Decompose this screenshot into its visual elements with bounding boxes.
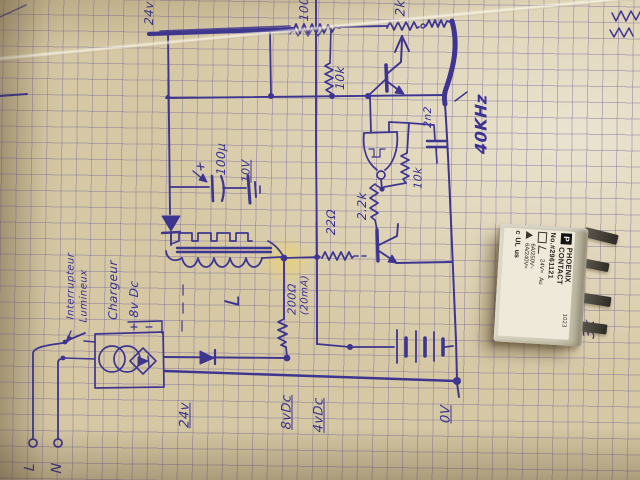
isolation-dashed-line bbox=[182, 285, 183, 331]
label-10k-feedback: 10k bbox=[412, 167, 425, 190]
schmitt-oscillator bbox=[364, 92, 467, 229]
base-lead bbox=[369, 79, 386, 95]
scribble bbox=[610, 28, 633, 37]
label-24v: 24v bbox=[178, 402, 193, 429]
label-cap-10v: 10V bbox=[240, 159, 253, 183]
resistor-10k-bus bbox=[325, 28, 333, 95]
charger-outline bbox=[95, 332, 164, 388]
gate-top bbox=[364, 132, 397, 133]
charger-output-wire bbox=[164, 350, 287, 364]
ground-bar bbox=[255, 182, 256, 197]
label-chargeur: Chargeur bbox=[106, 260, 120, 321]
primary-winding bbox=[171, 233, 252, 244]
collector-lead bbox=[388, 40, 402, 73]
left-wire-fragment bbox=[0, 94, 27, 96]
driver-transistor bbox=[284, 224, 452, 263]
junction-dot bbox=[329, 93, 335, 99]
hysteresis-icon bbox=[369, 149, 374, 157]
label-inductor: L bbox=[220, 293, 244, 306]
label-2k2: 2.2k bbox=[355, 191, 369, 220]
terminal-circle bbox=[29, 439, 37, 447]
wire bbox=[396, 262, 452, 263]
wire bbox=[262, 257, 281, 258]
wire bbox=[270, 31, 271, 95]
emitter-arrow bbox=[395, 86, 404, 94]
wire bbox=[84, 341, 95, 342]
label-10k-bus: 10k bbox=[333, 66, 347, 91]
upper-transistor bbox=[369, 36, 409, 95]
wire bbox=[317, 344, 350, 347]
transistor-bar bbox=[377, 230, 378, 261]
gate-input-wire bbox=[389, 122, 409, 153]
coil-pictogram-icon bbox=[538, 232, 548, 244]
corner-scribble bbox=[610, 11, 640, 37]
us-mark: us bbox=[513, 249, 520, 258]
wire bbox=[330, 28, 331, 63]
resistor-icon bbox=[278, 319, 287, 347]
terminal-dot bbox=[421, 24, 425, 28]
collector-lead bbox=[379, 224, 398, 245]
right-rail-heavy-curve bbox=[444, 21, 455, 104]
relay-label-face: P PHOENIX CONTACT No.#2961121 24V= Au bbox=[498, 228, 575, 340]
csa-c-mark: c bbox=[514, 230, 521, 234]
relay-ratings: 6A/250V~ 6A/240V= bbox=[521, 243, 536, 269]
label-terminal-n: N bbox=[49, 462, 65, 474]
wire bbox=[384, 183, 406, 187]
label-interrupteur: Interrupteur bbox=[66, 252, 77, 320]
label-0v: 0V bbox=[439, 404, 454, 423]
relay-coil-voltage: 24V= bbox=[537, 259, 544, 274]
diode-bar bbox=[148, 356, 149, 366]
relay-brand-name: PHOENIX CONTACT bbox=[555, 247, 573, 285]
label-cap-2n2: 2n2 bbox=[422, 106, 434, 128]
gate-side bbox=[364, 133, 377, 170]
label-22ohm: 22Ω bbox=[324, 209, 338, 236]
label-frequency: 40KHz bbox=[472, 93, 491, 154]
inverter-bubble bbox=[377, 171, 385, 179]
wire bbox=[316, 0, 317, 344]
wire bbox=[445, 346, 453, 347]
feedback-resistor-icon bbox=[401, 153, 409, 183]
scribble bbox=[612, 11, 640, 21]
gate-side bbox=[385, 132, 397, 170]
diode-icon bbox=[200, 351, 214, 364]
plus-mark bbox=[197, 163, 204, 170]
mid-bus-line bbox=[166, 95, 446, 98]
resistor-icon bbox=[322, 252, 353, 260]
contact-pictogram-icon bbox=[538, 245, 546, 256]
right-rail bbox=[445, 104, 457, 380]
cap-plate bbox=[212, 176, 213, 201]
ul-mark: UL bbox=[513, 237, 521, 247]
vde-triangle-icon bbox=[526, 231, 533, 239]
phoenix-logo-icon: P bbox=[560, 233, 572, 245]
diode-icon bbox=[162, 216, 180, 231]
battery bbox=[317, 330, 453, 363]
terminal-circle bbox=[54, 439, 62, 447]
wire bbox=[284, 257, 320, 258]
arrowhead bbox=[199, 174, 207, 182]
label-8v-dc: 8v Dc bbox=[127, 280, 141, 318]
label-8vdc: 8vDc bbox=[280, 394, 295, 430]
rail-stub bbox=[457, 383, 459, 397]
wire bbox=[63, 358, 95, 359]
wire bbox=[164, 357, 287, 358]
relay-date-code: 1023 bbox=[560, 313, 567, 327]
resistor-icon bbox=[426, 20, 450, 27]
label-4vdc: 4vDc bbox=[312, 397, 327, 433]
label-200ohm: 200Ω bbox=[286, 283, 299, 315]
transistor-bar bbox=[386, 65, 387, 91]
resistor-icon bbox=[325, 63, 333, 95]
photo-of-hand-drawn-schematic: 24v 100 2k 10k 100µ 10V 40KHz 2n2 10k 2.… bbox=[0, 0, 640, 480]
zero-volt-rail bbox=[165, 371, 456, 381]
wire bbox=[436, 148, 437, 163]
base-resistor-icon bbox=[370, 184, 378, 229]
neutral-wire bbox=[58, 358, 63, 438]
label-lumineux: Lumineux bbox=[79, 269, 90, 323]
freq-tick bbox=[455, 92, 467, 101]
label-20ma: (20mA) bbox=[300, 275, 311, 316]
secondary-winding bbox=[182, 258, 262, 267]
plus-minus-marks bbox=[131, 324, 152, 330]
label-terminal-l: L bbox=[22, 462, 38, 471]
diode-icon bbox=[138, 357, 148, 366]
phoenix-contact-relay: P PHOENIX CONTACT No.#2961121 24V= Au bbox=[493, 223, 588, 346]
transformer-coil-icon bbox=[99, 346, 125, 372]
emitter-arrow bbox=[388, 255, 397, 263]
label-cap-100u: 100µ bbox=[214, 142, 228, 176]
transformer bbox=[166, 233, 283, 267]
relay-contact-material: Au bbox=[537, 277, 543, 285]
gate-input-wire bbox=[370, 97, 371, 132]
relay-brand-line2: CONTACT bbox=[555, 247, 565, 285]
